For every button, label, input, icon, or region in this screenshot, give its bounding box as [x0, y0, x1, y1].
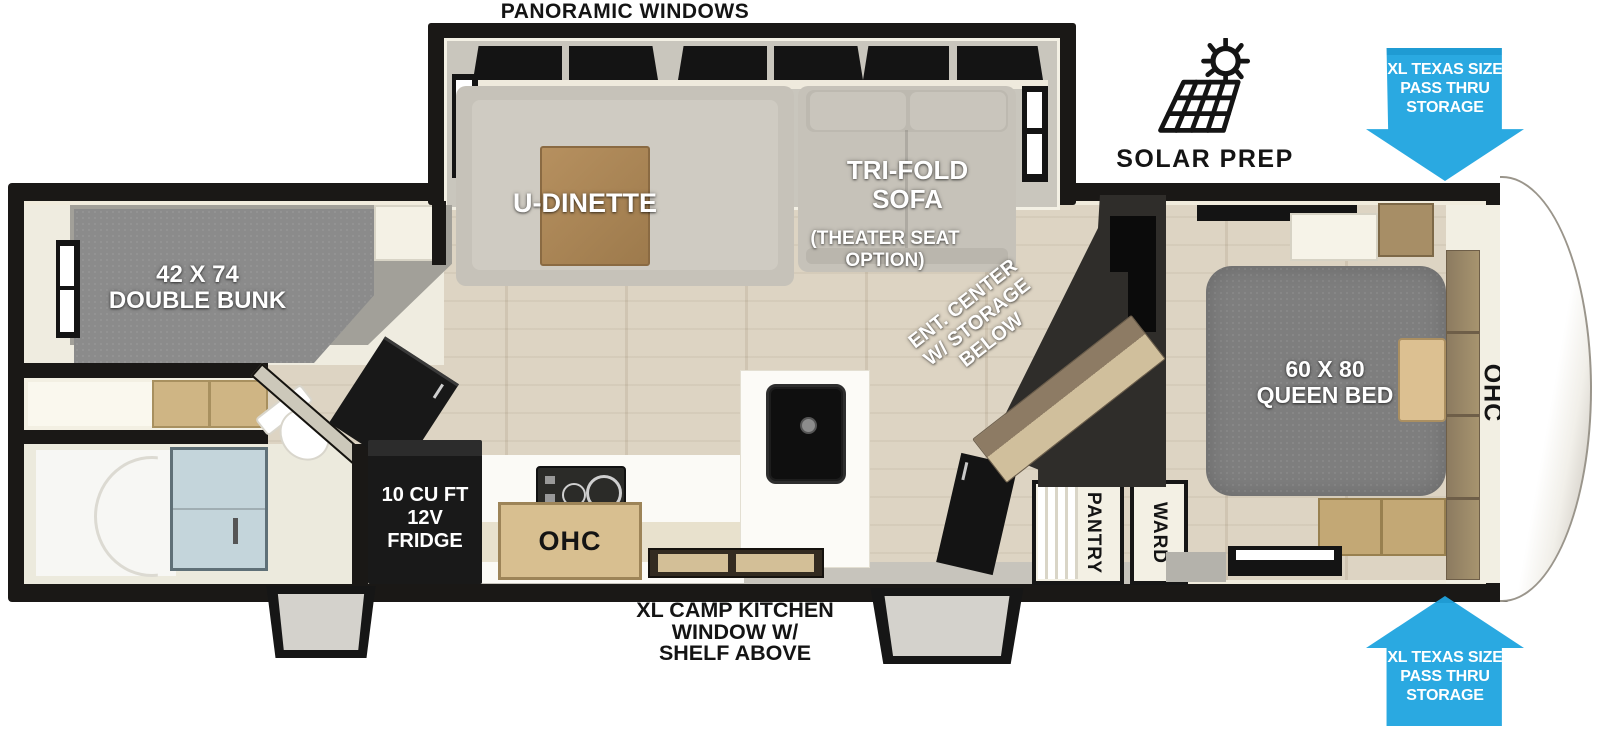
- camp-kitchen-line2: WINDOW W/: [595, 622, 875, 644]
- entry-step-rear-tread: [272, 594, 370, 650]
- fridge-label-line3: FRIDGE: [368, 530, 482, 553]
- glass-seam: [173, 508, 265, 510]
- bunk-wall-stub: [432, 201, 446, 265]
- panoramic-windows-label: PANORAMIC WINDOWS: [460, 0, 790, 24]
- fridge-label-line1: 10 CU FT: [368, 484, 482, 507]
- storage-counter: [28, 382, 152, 426]
- pass-thru-label-bottom: XL TEXAS SIZE PASS THRU STORAGE: [1366, 648, 1524, 705]
- window-pane: [736, 554, 814, 572]
- window-pane: [60, 290, 74, 332]
- sofa-label-line2: SOFA: [820, 185, 995, 214]
- burner-grate: [545, 494, 555, 502]
- bed-label-line2: QUEEN BED: [1240, 382, 1410, 408]
- panoramic-window-3: [863, 46, 1043, 80]
- pass-thru-line3: STORAGE: [1366, 686, 1524, 705]
- bunk-label-line2: DOUBLE BUNK: [90, 288, 305, 314]
- sofa-option-line2: OPTION): [795, 250, 975, 272]
- camp-kitchen-line3: SHELF ABOVE: [595, 643, 875, 665]
- window-mullion: [949, 46, 956, 80]
- faucet: [800, 417, 817, 434]
- front-cap: [1500, 176, 1592, 602]
- bunk-label-line1: 42 X 74: [90, 262, 305, 288]
- pass-thru-line1: XL TEXAS SIZE: [1366, 648, 1524, 667]
- bedside-shelf: [1398, 338, 1446, 422]
- bunk-bottom-wall: [24, 363, 268, 378]
- ent-center-nook: [1110, 216, 1156, 272]
- bunk-cabinet: [374, 205, 434, 261]
- sofa-back-cushion: [910, 92, 1006, 130]
- pass-thru-line1: XL TEXAS SIZE: [1366, 60, 1524, 79]
- bath-fridge-wall: [352, 444, 368, 584]
- sofa-label-line1: TRI-FOLD: [820, 156, 995, 185]
- pass-thru-arrow-up: XL TEXAS SIZE PASS THRU STORAGE: [1366, 596, 1524, 726]
- solar-panel-icon: [1150, 38, 1255, 143]
- pass-thru-line2: PASS THRU: [1366, 79, 1524, 98]
- pass-thru-arrow-down: XL TEXAS SIZE PASS THRU STORAGE: [1366, 48, 1524, 181]
- sofa-back-cushion: [810, 92, 906, 130]
- window-mullion: [767, 46, 774, 80]
- bedroom-vanity: [1290, 213, 1378, 261]
- camp-kitchen-line1: XL CAMP KITCHEN: [595, 600, 875, 622]
- window-pane: [1236, 550, 1334, 560]
- kitchen-ohc-label: OHC: [539, 526, 602, 557]
- fridge-label: 10 CU FT 12V FRIDGE: [368, 484, 482, 553]
- pass-thru-line3: STORAGE: [1366, 98, 1524, 117]
- kitchen-ohc-cabinet: OHC: [498, 502, 642, 580]
- storage-bottom-wall: [24, 430, 268, 444]
- bedroom-window-bottom: [1228, 546, 1342, 576]
- fridge: 10 CU FT 12V FRIDGE: [368, 440, 482, 584]
- rv-floorplan: PANORAMIC WINDOWS U-DINETTE TRI-FOLD SOF…: [0, 0, 1600, 730]
- entry-step-main-tread: [876, 596, 1018, 656]
- window-pane: [60, 246, 74, 286]
- pantry-label: PANTRY: [1082, 492, 1104, 574]
- double-bunk-label: 42 X 74 DOUBLE BUNK: [90, 262, 305, 314]
- storage-wood-cabinet: [152, 380, 268, 428]
- door-handle: [961, 462, 968, 480]
- window-pane: [1027, 92, 1042, 128]
- window-pane: [658, 554, 728, 572]
- kitchen-sink: [766, 384, 846, 484]
- bedroom-step: [1166, 552, 1226, 582]
- sofa-label: TRI-FOLD SOFA: [820, 156, 995, 214]
- pantry: PANTRY: [1032, 480, 1124, 585]
- storage-strip: [24, 378, 268, 430]
- panoramic-window-2: [678, 46, 863, 80]
- bunk-window: [56, 240, 80, 338]
- pass-thru-label-top: XL TEXAS SIZE PASS THRU STORAGE: [1366, 60, 1524, 117]
- dinette-label: U-DINETTE: [465, 188, 705, 219]
- window-mullion: [562, 46, 569, 80]
- tv-handle: [433, 384, 444, 399]
- sofa-option-line1: (THEATER SEAT: [795, 228, 975, 250]
- shower-glass-door: [170, 447, 268, 571]
- shower-handle: [233, 518, 238, 544]
- sofa-option-label: (THEATER SEAT OPTION): [795, 228, 975, 272]
- bed-label-line1: 60 X 80: [1240, 356, 1410, 382]
- window-pane: [1027, 134, 1042, 174]
- camp-kitchen-label: XL CAMP KITCHEN WINDOW W/ SHELF ABOVE: [595, 600, 875, 665]
- bedroom-overhead-cabinet-front: [1378, 203, 1434, 257]
- slideout-side-window-right: [1022, 86, 1048, 182]
- fridge-label-line2: 12V: [368, 507, 482, 530]
- pantry-shelves: [1038, 486, 1078, 579]
- pass-thru-line2: PASS THRU: [1366, 667, 1524, 686]
- camp-kitchen-window: [648, 548, 824, 578]
- solar-prep-label: SOLAR PREP: [1105, 145, 1305, 174]
- panoramic-window-1: [473, 46, 658, 80]
- burner-grate: [545, 476, 555, 484]
- queen-bed-label: 60 X 80 QUEEN BED: [1240, 356, 1410, 408]
